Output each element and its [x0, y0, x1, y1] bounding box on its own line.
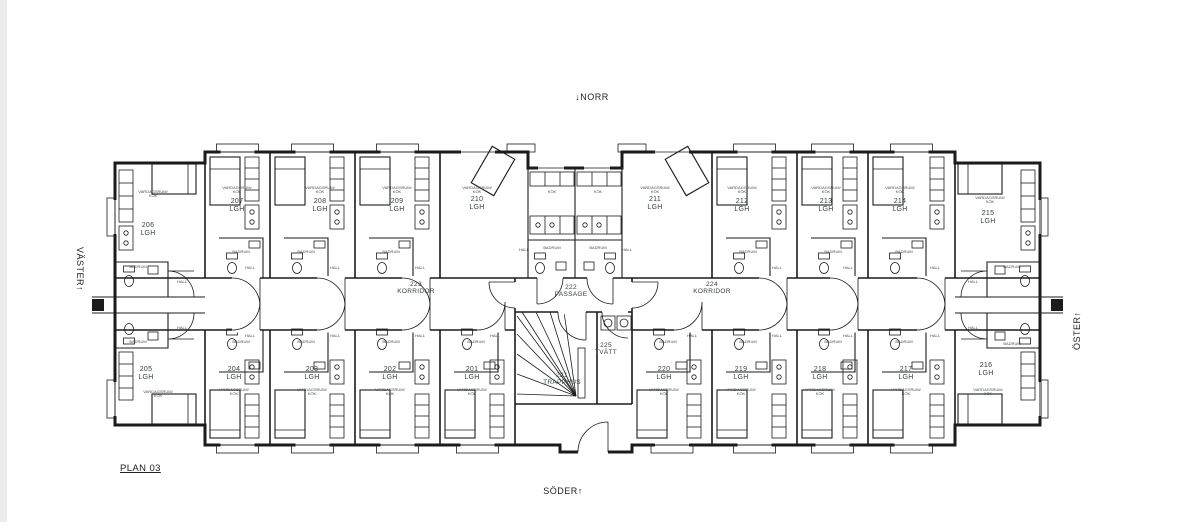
floor-plan-drawing	[0, 0, 1200, 522]
floor-plan-canvas: ↓NORR SÖDER↑ VÄSTER↑ ÖSTER↑ PLAN 03 223K…	[0, 0, 1200, 522]
generated-detail	[107, 144, 1048, 455]
plan-title: PLAN 03	[120, 463, 161, 474]
west-entry-pier	[92, 299, 104, 311]
walls	[92, 152, 1063, 452]
light-walls	[92, 168, 1063, 313]
compass-west: VÄSTER↑	[75, 247, 85, 291]
compass-east: ÖSTER↑	[1072, 311, 1082, 350]
east-entry-pier	[1051, 299, 1063, 311]
west-arrow-icon: ↑	[75, 286, 85, 291]
partition-walls	[115, 152, 1040, 445]
east-arrow-icon: ↑	[1072, 311, 1082, 316]
building-outline	[115, 152, 1040, 452]
